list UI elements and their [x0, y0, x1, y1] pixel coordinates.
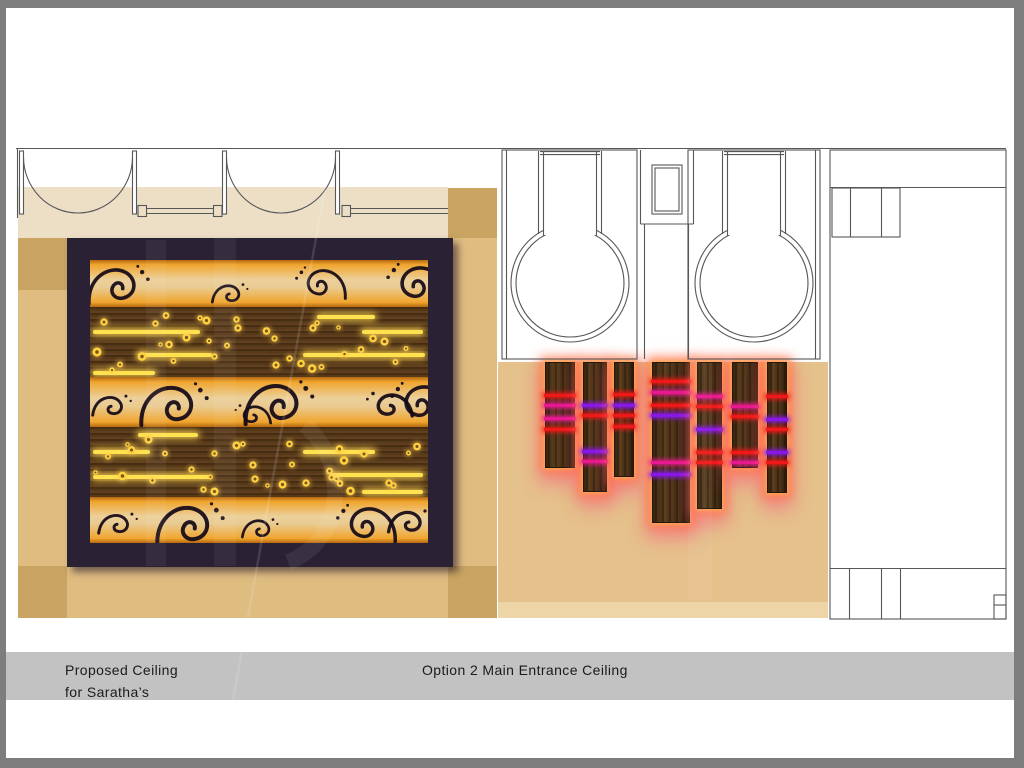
corridor-drawing — [641, 150, 694, 359]
adjacent-room-drawing — [830, 150, 1006, 619]
footer-banner: Proposed Ceiling for Saratha’s Option 2 … — [6, 652, 1014, 700]
project-title-line2: for Saratha’s — [65, 685, 149, 700]
option-title: Option 2 Main Entrance Ceiling — [422, 663, 628, 678]
double-door-drawing — [223, 151, 340, 214]
column-bay-drawing — [502, 150, 820, 359]
project-title-line1: Proposed Ceiling — [65, 663, 178, 678]
railing-drawing — [138, 206, 448, 217]
presentation-slide: Proposed Ceiling for Saratha’s Option 2 … — [0, 0, 1024, 768]
double-door-drawing — [20, 151, 137, 214]
